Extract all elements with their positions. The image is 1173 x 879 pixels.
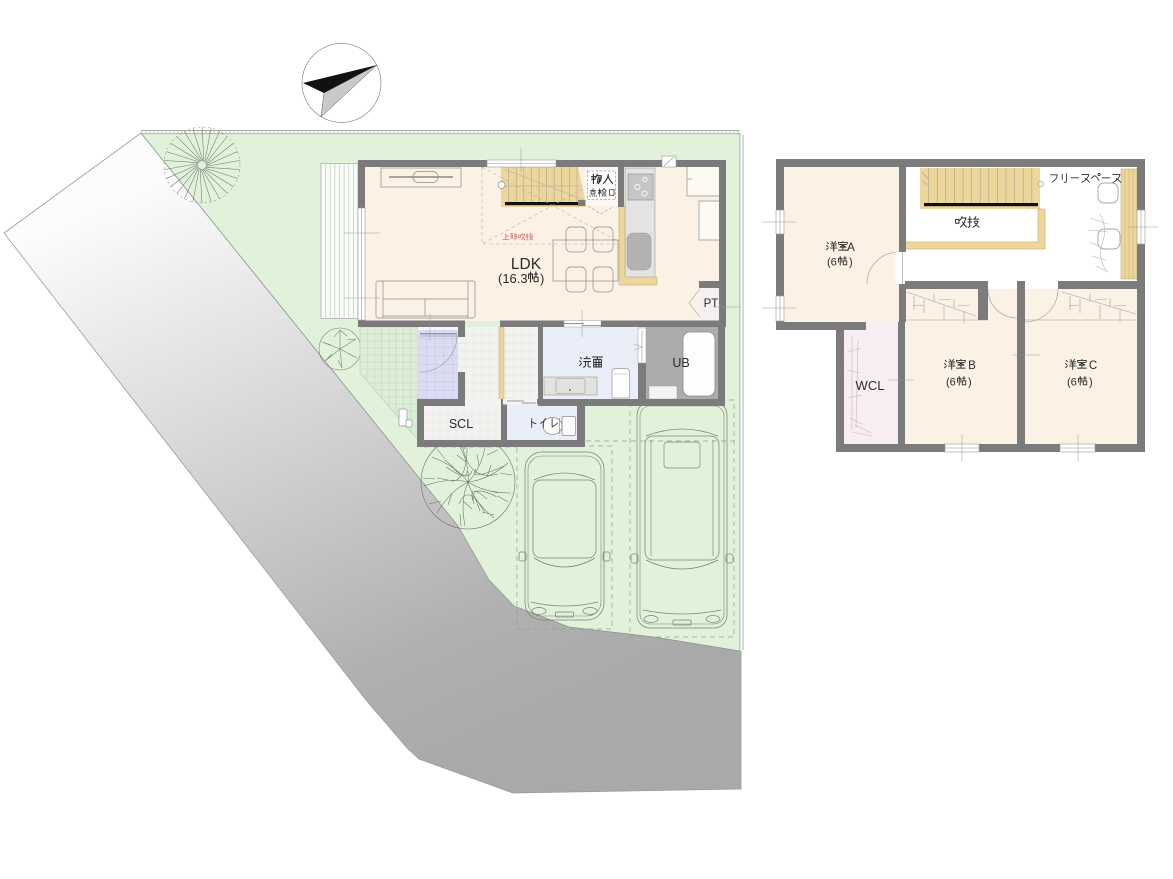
svg-text:): ) [968, 377, 972, 389]
svg-text:): ) [540, 271, 544, 286]
svg-text:): ) [849, 257, 853, 269]
svg-text:A: A [847, 242, 855, 254]
svg-text:(6: (6 [1067, 377, 1077, 389]
svg-text:C: C [1089, 360, 1097, 372]
svg-text:(6: (6 [827, 257, 837, 269]
svg-text:B: B [968, 360, 976, 372]
svg-text:SCL: SCL [449, 417, 473, 431]
svg-text:PT: PT [704, 298, 719, 310]
svg-text:UB: UB [672, 356, 689, 370]
svg-text:(6: (6 [946, 377, 956, 389]
svg-text:(16.3: (16.3 [498, 271, 528, 286]
svg-text:): ) [1089, 377, 1093, 389]
svg-text:WCL: WCL [856, 378, 885, 393]
